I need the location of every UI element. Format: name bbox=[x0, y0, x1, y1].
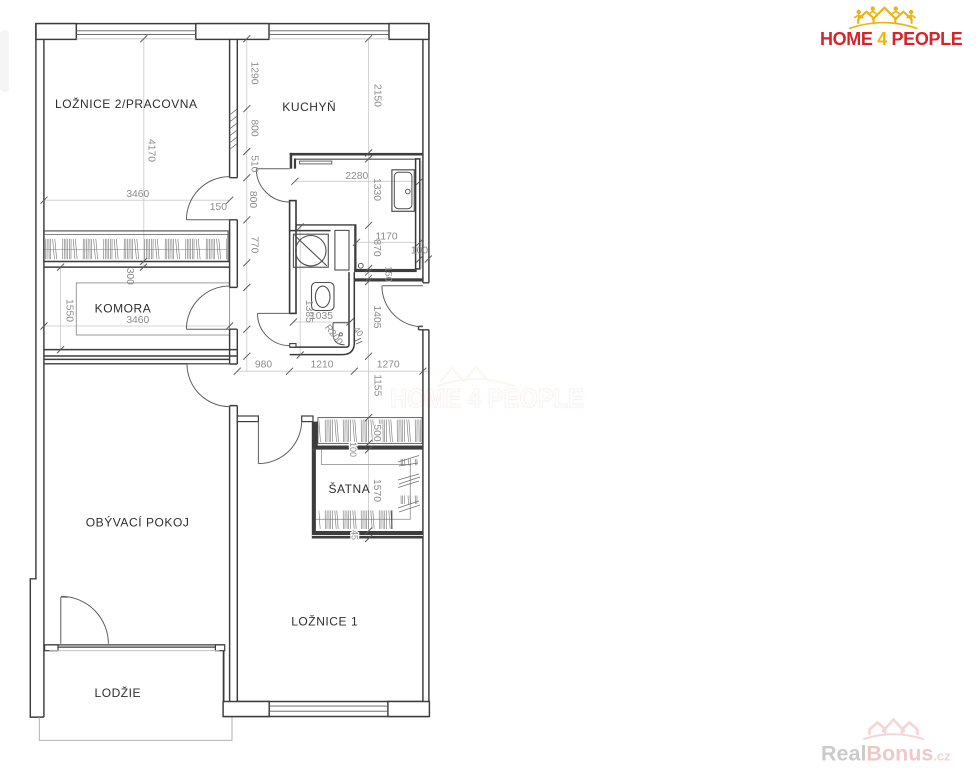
svg-text:2150: 2150 bbox=[372, 84, 383, 107]
svg-text:LOŽNICE 2/PRACOVNA: LOŽNICE 2/PRACOVNA bbox=[55, 96, 198, 111]
svg-text:3460: 3460 bbox=[126, 315, 149, 326]
svg-text:LODŽIE: LODŽIE bbox=[94, 685, 141, 700]
svg-text:150: 150 bbox=[383, 266, 394, 282]
svg-text:800: 800 bbox=[247, 191, 258, 208]
svg-text:HOME 4 PEOPLE: HOME 4 PEOPLE bbox=[390, 383, 584, 413]
svg-text:1570: 1570 bbox=[371, 479, 382, 502]
svg-text:1210: 1210 bbox=[311, 359, 334, 370]
svg-text:45: 45 bbox=[350, 530, 360, 540]
svg-text:150: 150 bbox=[210, 202, 227, 213]
svg-text:4170: 4170 bbox=[146, 139, 157, 162]
svg-text:1385: 1385 bbox=[303, 300, 314, 323]
svg-text:1330: 1330 bbox=[371, 178, 382, 201]
svg-text:300: 300 bbox=[124, 268, 135, 285]
svg-text:1550: 1550 bbox=[64, 299, 75, 322]
svg-text:1155: 1155 bbox=[372, 374, 383, 396]
svg-text:100: 100 bbox=[411, 245, 428, 256]
svg-text:870: 870 bbox=[371, 239, 382, 256]
svg-text:3460: 3460 bbox=[126, 189, 149, 200]
svg-text:2280: 2280 bbox=[345, 171, 368, 182]
svg-text:100: 100 bbox=[348, 442, 358, 457]
svg-text:1270: 1270 bbox=[377, 359, 400, 370]
svg-text:ŠATNA: ŠATNA bbox=[328, 481, 370, 496]
svg-text:1405: 1405 bbox=[371, 306, 382, 329]
svg-text:LOŽNICE 1: LOŽNICE 1 bbox=[291, 614, 358, 629]
svg-text:OBÝVACÍ POKOJ: OBÝVACÍ POKOJ bbox=[86, 515, 190, 530]
svg-text:HOME 4 PEOPLE: HOME 4 PEOPLE bbox=[820, 29, 963, 49]
svg-text:770: 770 bbox=[249, 236, 260, 253]
svg-text:KUCHYŇ: KUCHYŇ bbox=[282, 99, 336, 114]
svg-text:800: 800 bbox=[249, 119, 260, 136]
svg-text:KOMORA: KOMORA bbox=[95, 302, 152, 316]
svg-text:980: 980 bbox=[255, 359, 272, 370]
svg-text:510: 510 bbox=[249, 155, 260, 172]
svg-text:RealBonus.cz: RealBonus.cz bbox=[821, 742, 951, 766]
svg-text:1290: 1290 bbox=[249, 62, 260, 85]
svg-text:500: 500 bbox=[371, 424, 382, 441]
